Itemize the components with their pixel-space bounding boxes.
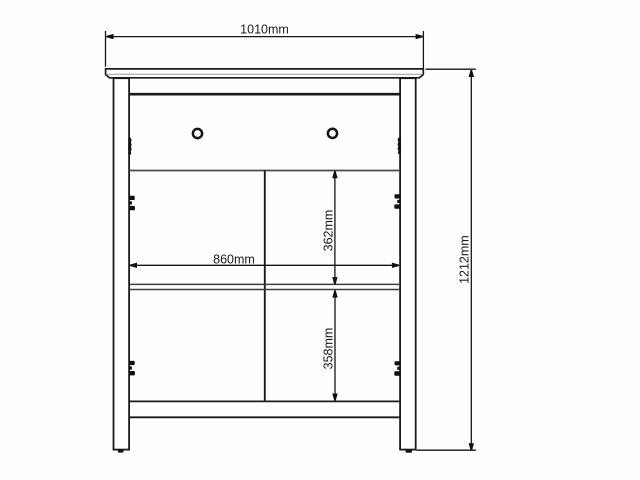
svg-text:362mm: 362mm	[321, 210, 335, 252]
svg-text:1010mm: 1010mm	[240, 23, 289, 37]
svg-text:1212mm: 1212mm	[457, 235, 471, 284]
svg-text:358mm: 358mm	[321, 328, 335, 370]
svg-text:860mm: 860mm	[213, 252, 255, 266]
